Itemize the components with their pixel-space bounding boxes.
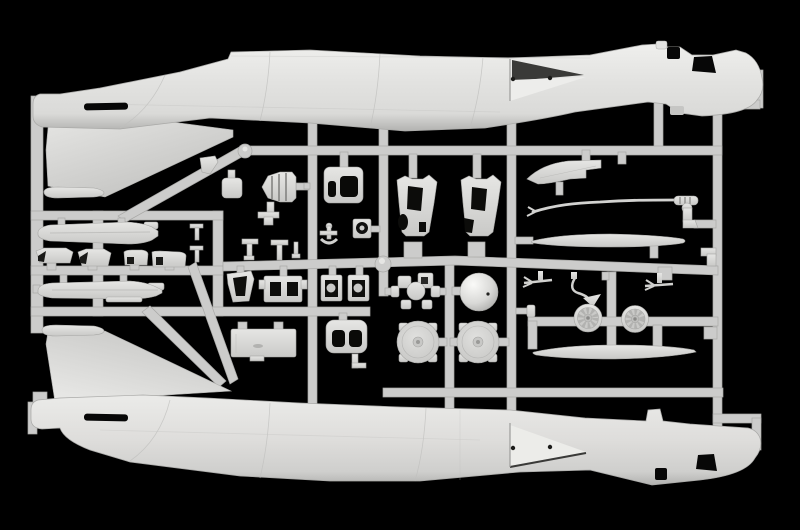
runner-segment xyxy=(213,211,223,316)
engine-disc-a xyxy=(397,321,439,363)
lower-fin-tip-pod xyxy=(42,325,104,336)
engine-disc-b xyxy=(457,321,499,363)
runner-node-highlight xyxy=(243,147,248,152)
equipment-panel xyxy=(231,329,296,361)
wheel-a xyxy=(574,304,602,332)
sprue-photo xyxy=(0,0,800,530)
lower-locating-hole-2 xyxy=(548,445,552,449)
upper-nose-step xyxy=(670,106,684,115)
lower-intake-notch xyxy=(655,468,667,480)
bezel-b xyxy=(348,275,369,301)
hub-part xyxy=(353,219,371,238)
upper-locating-hole-2 xyxy=(548,76,552,80)
runner-segment xyxy=(607,272,616,350)
small-nub-part xyxy=(527,305,535,317)
lower-locating-hole-1 xyxy=(511,446,515,450)
runner-node-highlight xyxy=(379,258,385,264)
runner-segment xyxy=(654,98,663,154)
runner-segment xyxy=(383,388,723,397)
upper-locating-hole-1 xyxy=(511,77,515,81)
upper-tail-slot xyxy=(84,103,128,111)
runner-segment xyxy=(31,307,370,316)
upper-windscreen-notch xyxy=(667,47,680,59)
dome-part xyxy=(460,273,498,311)
upper-fin-tip-pod xyxy=(44,187,104,198)
wheel-b xyxy=(622,306,649,333)
upper-cockpit-opening xyxy=(692,56,716,73)
runner-segment xyxy=(240,146,722,155)
intake-box xyxy=(324,167,363,203)
duct-end xyxy=(326,320,367,353)
drop-tank-1 xyxy=(38,222,158,244)
runner-segment xyxy=(653,325,662,349)
lower-tail-slot xyxy=(84,414,128,422)
sprue-photo-canvas xyxy=(0,0,800,530)
bezel-a xyxy=(321,275,342,301)
runner-segment xyxy=(445,260,454,410)
runner-segment xyxy=(528,321,537,349)
upper-spine-tab xyxy=(656,41,667,49)
lower-cockpit-opening xyxy=(696,454,717,471)
window-box xyxy=(259,276,307,302)
